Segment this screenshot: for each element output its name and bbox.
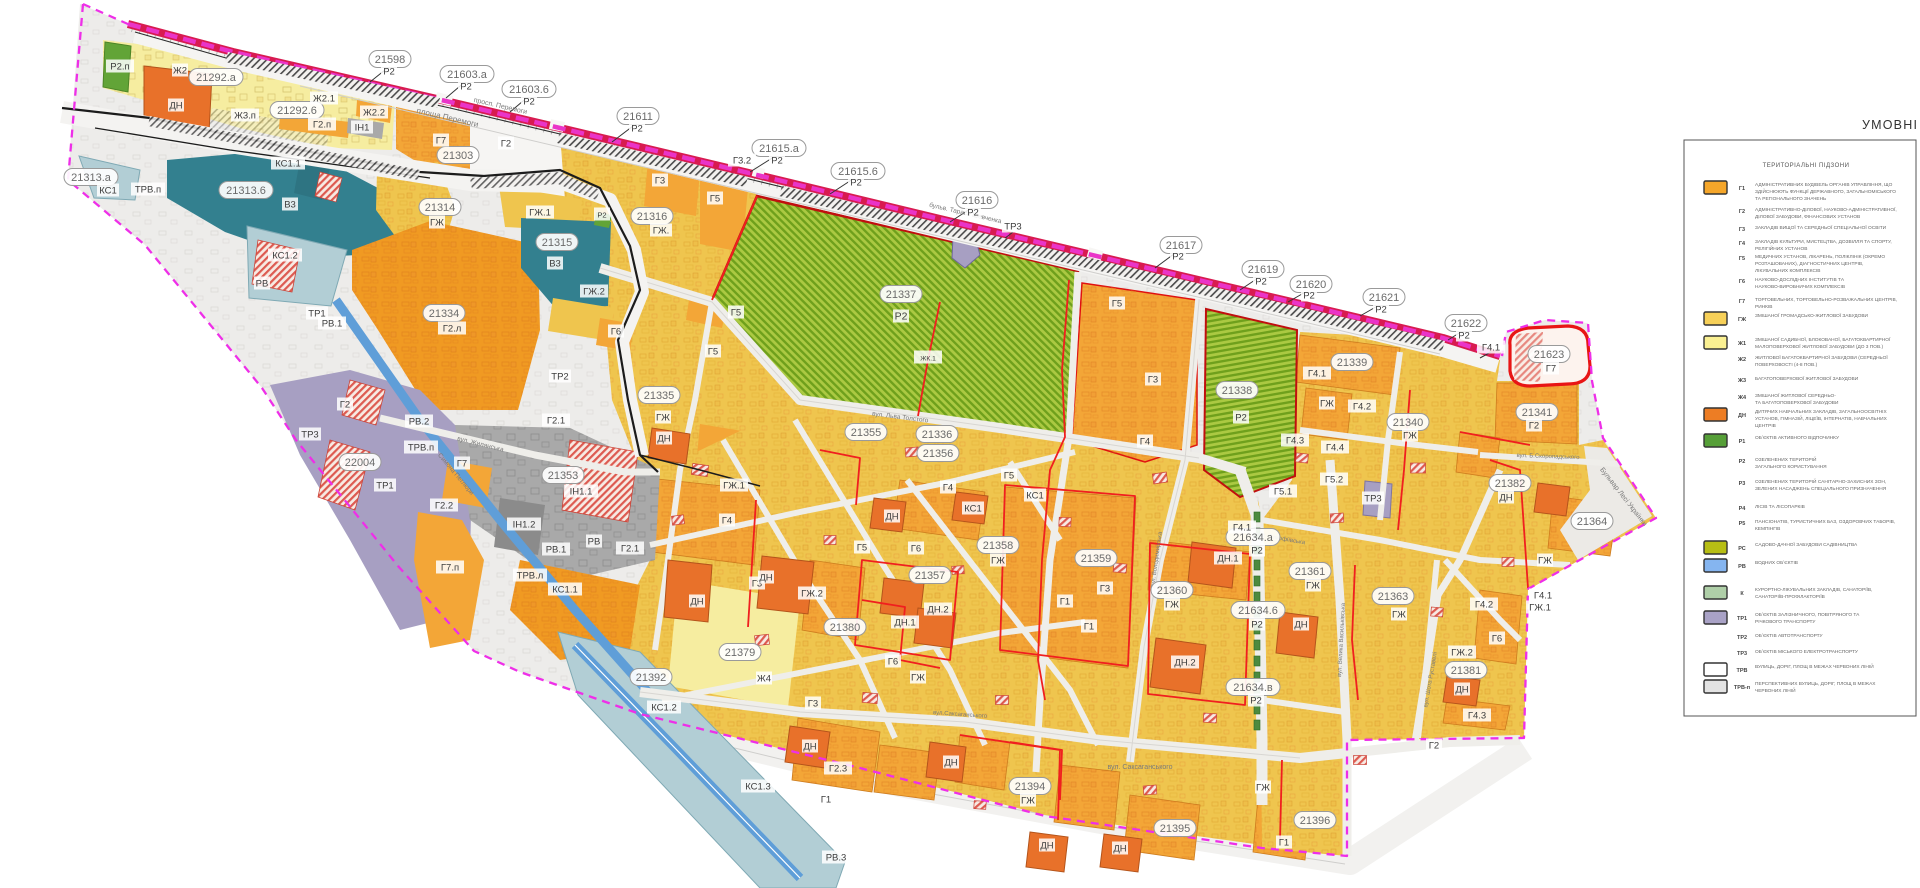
svg-text:ЗАГАЛЬНОГО КОРИСТУВАННЯ: ЗАГАЛЬНОГО КОРИСТУВАННЯ [1755,464,1827,470]
svg-text:21358: 21358 [983,540,1014,552]
svg-text:21340: 21340 [1393,417,1424,429]
svg-text:21315: 21315 [542,237,573,249]
svg-text:Г4.3: Г4.3 [1286,436,1304,447]
svg-text:ЛІСІВ ТА ЛІСОПАРКІВ: ЛІСІВ ТА ЛІСОПАРКІВ [1755,504,1805,510]
svg-text:ТРВ.п: ТРВ.п [135,185,161,196]
svg-text:ТОРГОВЕЛЬНИХ, ТОРГОВЕЛЬНО-РОЗВ: ТОРГОВЕЛЬНИХ, ТОРГОВЕЛЬНО-РОЗВАЖАЛЬНИХ Ц… [1755,297,1897,303]
svg-text:Г2: Г2 [340,400,350,411]
svg-text:21395: 21395 [1160,823,1191,835]
svg-text:РВ: РВ [256,279,269,290]
svg-text:ГЖ: ГЖ [911,673,925,684]
svg-text:КС1.3: КС1.3 [745,782,771,793]
svg-text:КЕМПІНГІВ: КЕМПІНГІВ [1755,526,1780,532]
svg-text:НАУКОВО-ВИРОБНИЧИХ КОМПЛЕКСІВ: НАУКОВО-ВИРОБНИЧИХ КОМПЛЕКСІВ [1755,284,1845,290]
svg-text:21313.6: 21313.6 [226,185,266,197]
svg-text:ДН: ДН [759,573,772,584]
svg-text:Р2: Р2 [460,82,472,93]
svg-text:Г2.л: Г2.л [443,324,462,335]
svg-text:ДН.2: ДН.2 [1174,658,1195,669]
svg-text:УМОВНІ: УМОВНІ [1862,118,1918,132]
svg-text:КС1.1: КС1.1 [275,159,301,170]
svg-text:ДН: ДН [1294,620,1307,631]
svg-text:ТР3: ТР3 [1004,222,1021,233]
svg-text:21622: 21622 [1451,318,1482,330]
svg-text:РОЗТАШОВАНИХ), ДІАГНОСТИЧНИХ Ц: РОЗТАШОВАНИХ), ДІАГНОСТИЧНИХ ЦЕНТРІВ, [1755,261,1863,267]
svg-text:21361: 21361 [1295,566,1326,578]
svg-text:НАУКОВО-ДОСЛІДНИХ ІНСТИТУТІВ Т: НАУКОВО-ДОСЛІДНИХ ІНСТИТУТІВ ТА [1755,277,1845,283]
svg-text:ДН: ДН [1499,493,1512,504]
svg-text:Г6: Г6 [888,657,898,668]
svg-text:Р2: Р2 [967,208,979,219]
svg-text:ДН.1: ДН.1 [894,618,915,629]
svg-text:ГЖ: ГЖ [1256,783,1270,794]
svg-text:Г4.1: Г4.1 [1233,523,1251,534]
svg-text:ДН: ДН [944,758,957,769]
svg-text:ОБʼЄКТІВ АВТОТРАНСПОРТУ: ОБʼЄКТІВ АВТОТРАНСПОРТУ [1755,633,1824,639]
svg-text:21379: 21379 [725,647,756,659]
svg-text:21634.в: 21634.в [1233,682,1273,694]
svg-text:ДН: ДН [1113,844,1126,855]
svg-text:ДН: ДН [657,434,670,445]
svg-text:ГЖ: ГЖ [1306,581,1320,592]
svg-text:Р3: Р3 [1739,481,1746,487]
svg-text:21381: 21381 [1451,665,1482,677]
svg-text:Г7.п: Г7.п [441,563,459,574]
svg-text:21603.a: 21603.a [447,69,488,81]
svg-text:ГЖ: ГЖ [1021,796,1035,807]
svg-text:Г5: Г5 [708,347,718,358]
svg-text:Г5: Г5 [1112,299,1122,310]
svg-text:ЖК.1: ЖК.1 [920,356,936,363]
svg-text:Г2: Г2 [1529,421,1539,432]
svg-text:Р2: Р2 [1251,546,1263,557]
svg-text:21380: 21380 [830,622,861,634]
svg-text:Г4: Г4 [722,516,732,527]
svg-text:Г6: Г6 [1492,634,1502,645]
svg-text:В3: В3 [549,259,561,270]
svg-text:ПОВЕРХОВОСТІ (4-8 ПОВ.): ПОВЕРХОВОСТІ (4-8 ПОВ.) [1755,362,1818,368]
svg-text:Г4: Г4 [943,483,953,494]
svg-text:ДН: ДН [690,597,703,608]
svg-text:САНАТОРІЇВ-ПРОФІЛАКТОРІЇВ: САНАТОРІЇВ-ПРОФІЛАКТОРІЇВ [1755,593,1825,600]
svg-text:ІН1: ІН1 [355,123,370,134]
svg-text:ГЖ.1: ГЖ.1 [1529,603,1551,614]
svg-text:РИНКІВ: РИНКІВ [1755,304,1772,310]
svg-text:ГЖ: ГЖ [430,218,444,229]
svg-text:21392: 21392 [636,672,667,684]
svg-text:21313.a: 21313.a [71,172,112,184]
svg-text:Ж3.п: Ж3.п [234,111,256,122]
svg-text:РВ.2: РВ.2 [409,417,430,428]
svg-text:ВОДНИХ ОБʼЄКТІВ: ВОДНИХ ОБʼЄКТІВ [1755,560,1798,566]
svg-text:МАЛОПОВЕРХОВОЇ ЖИТЛОВОЇ ЗАБУДО: МАЛОПОВЕРХОВОЇ ЖИТЛОВОЇ ЗАБУДОВИ (ДО 3 П… [1755,343,1884,350]
svg-text:Г5: Г5 [1004,471,1014,482]
svg-text:ГЖ: ГЖ [1403,431,1417,442]
svg-text:Г7: Г7 [457,459,467,470]
svg-text:ГЖ: ГЖ [656,413,670,424]
svg-text:Г1: Г1 [1060,597,1070,608]
svg-text:ДН: ДН [1455,685,1468,696]
svg-text:21619: 21619 [1248,264,1279,276]
svg-text:21355: 21355 [851,427,882,439]
svg-text:Р2: Р2 [850,178,862,189]
svg-text:Р2: Р2 [1235,413,1247,424]
svg-text:ОБʼЄКТІВ МІСЬКОГО ЕЛЕКТРОТРАНС: ОБʼЄКТІВ МІСЬКОГО ЕЛЕКТРОТРАНСПОРТУ [1755,649,1859,655]
svg-text:ЦЕНТРІВ: ЦЕНТРІВ [1755,423,1776,429]
svg-text:21338: 21338 [1222,385,1253,397]
svg-text:ТР2: ТР2 [1737,635,1747,641]
svg-text:21316: 21316 [637,211,668,223]
svg-text:Р2: Р2 [523,97,535,108]
svg-text:Г5.1: Г5.1 [1274,487,1292,498]
svg-text:21335: 21335 [644,390,675,402]
svg-text:Р1: Р1 [1739,439,1746,445]
svg-text:Р2: Р2 [1250,696,1262,707]
svg-text:РВ: РВ [588,537,601,548]
svg-text:21357: 21357 [915,570,946,582]
svg-text:Г4: Г4 [1140,437,1150,448]
svg-text:ТА БАГАТОПОВЕРХОВОЇ ЗАБУДОВИ: ТА БАГАТОПОВЕРХОВОЇ ЗАБУДОВИ [1755,399,1839,406]
svg-text:ДН: ДН [885,512,898,523]
svg-text:Р2: Р2 [383,67,395,78]
svg-text:ТР3: ТР3 [1364,494,1381,505]
svg-text:Р2: Р2 [1739,459,1746,465]
svg-text:Г2.1: Г2.1 [547,416,565,427]
svg-text:РВ.1: РВ.1 [322,319,343,330]
svg-text:Г6: Г6 [911,544,921,555]
svg-text:Г3.2: Г3.2 [733,156,751,167]
svg-text:Г4.4: Г4.4 [1326,443,1344,454]
svg-text:21623: 21623 [1534,349,1565,361]
svg-text:Г7: Г7 [1546,364,1556,375]
svg-text:Ж2.2: Ж2.2 [363,108,385,119]
svg-text:БАГАТОПОВЕРХОВОЇ ЖИТЛОВОЇ ЗАБУ: БАГАТОПОВЕРХОВОЇ ЖИТЛОВОЇ ЗАБУДОВИ [1755,375,1859,382]
svg-text:ГЖ.1: ГЖ.1 [529,208,551,219]
svg-text:ГЖ: ГЖ [1738,317,1746,323]
svg-text:21394: 21394 [1015,781,1046,793]
svg-text:ЗЕЛЕНИХ НАСАДЖЕНЬ СПЕЦІАЛЬНОГО: ЗЕЛЕНИХ НАСАДЖЕНЬ СПЕЦІАЛЬНОГО ПРИЗНАЧЕН… [1755,486,1887,492]
svg-text:Г3: Г3 [1100,584,1110,595]
svg-text:КС1.1: КС1.1 [552,585,578,596]
svg-text:21611: 21611 [623,111,653,123]
svg-text:РВ.3: РВ.3 [826,853,847,864]
svg-text:ДН.1: ДН.1 [1217,554,1238,565]
svg-text:ГЖ.2: ГЖ.2 [801,589,823,600]
svg-text:Г5: Г5 [731,308,741,319]
svg-text:Р2: Р2 [597,211,606,220]
svg-text:Г4.1: Г4.1 [1308,369,1326,380]
svg-text:ТРВ.л: ТРВ.л [517,571,544,582]
svg-text:21359: 21359 [1081,553,1112,565]
svg-text:Р2: Р2 [1375,305,1387,316]
svg-text:ГЖ: ГЖ [1392,610,1406,621]
svg-text:ТР1: ТР1 [1737,616,1747,622]
svg-text:ДН: ДН [1040,841,1053,852]
svg-text:Г5: Г5 [857,543,867,554]
svg-text:Г2: Г2 [501,139,511,150]
svg-text:МЕДИЧНИХ УСТАНОВ, ЛІКАРЕНЬ, ПО: МЕДИЧНИХ УСТАНОВ, ЛІКАРЕНЬ, ПОЛІКЛІНІК (… [1755,254,1885,260]
svg-text:ТЕРИТОРІАЛЬНІ ПІДЗОНИ: ТЕРИТОРІАЛЬНІ ПІДЗОНИ [1763,163,1850,169]
svg-text:ГЖ: ГЖ [991,556,1005,567]
svg-text:ЖИТЛОВОЇ БАГАТОКВАРТИРНОЇ ЗАБУ: ЖИТЛОВОЇ БАГАТОКВАРТИРНОЇ ЗАБУДОВИ (СЕРЕ… [1755,354,1888,361]
svg-text:ГЖ: ГЖ [1538,556,1552,567]
svg-text:АДМІНІСТРАТИВНИХ БУДІВЕЛЬ ОРГА: АДМІНІСТРАТИВНИХ БУДІВЕЛЬ ОРГАНІВ УПРАВЛ… [1755,182,1893,188]
svg-text:ТР3: ТР3 [301,430,318,441]
svg-text:ПЕРСПЕКТИВНИХ ВУЛИЦЬ, ДОРІГ, П: ПЕРСПЕКТИВНИХ ВУЛИЦЬ, ДОРІГ, ПЛОЩ В МЕЖА… [1755,681,1876,687]
svg-text:21341: 21341 [1522,407,1553,419]
svg-text:Г1: Г1 [1739,186,1745,192]
svg-text:21616: 21616 [962,195,993,207]
svg-text:ІН1.1: ІН1.1 [570,487,593,498]
svg-text:Г3: Г3 [1148,375,1158,386]
svg-text:Г1: Г1 [1084,622,1094,633]
svg-text:КС1.2: КС1.2 [651,703,677,714]
svg-text:Г4.2: Г4.2 [1353,402,1371,413]
svg-text:Г6: Г6 [1739,279,1745,285]
svg-text:Ж4: Ж4 [1737,395,1747,401]
svg-text:КС1: КС1 [1026,491,1044,502]
svg-text:21336: 21336 [922,429,953,441]
svg-text:КС1: КС1 [964,504,982,515]
svg-text:Г7: Г7 [1739,299,1745,305]
svg-text:ТР2: ТР2 [551,372,568,383]
svg-text:21615.a: 21615.a [759,143,800,155]
svg-text:Р2: Р2 [1458,331,1470,342]
svg-text:21364: 21364 [1577,516,1608,528]
svg-text:Р2: Р2 [1255,277,1267,288]
svg-text:Г4.1: Г4.1 [1482,343,1500,354]
svg-text:ГЖ.2: ГЖ.2 [583,287,605,298]
svg-text:Ж2: Ж2 [173,66,187,77]
svg-text:21598: 21598 [375,54,406,66]
svg-text:В3: В3 [284,200,296,211]
svg-text:Р2.п: Р2.п [110,62,129,73]
svg-text:21634.6: 21634.6 [1238,605,1278,617]
svg-text:Г1: Г1 [1279,838,1289,849]
svg-text:22004: 22004 [345,457,376,469]
svg-text:ГЖ: ГЖ [1165,600,1179,611]
svg-text:Р2: Р2 [1251,620,1263,631]
svg-text:Ж4: Ж4 [757,674,771,685]
svg-text:ЗАКЛАДІВ ВИЩОЇ ТА СЕРЕДНЬОЇ СП: ЗАКЛАДІВ ВИЩОЇ ТА СЕРЕДНЬОЇ СПЕЦІАЛЬНОЇ … [1755,224,1887,231]
svg-text:ТА РЕГІОНАЛЬНОГО ЗНАЧЕНЬ: ТА РЕГІОНАЛЬНОГО ЗНАЧЕНЬ [1755,196,1826,202]
svg-text:Ж2.1: Ж2.1 [313,94,335,105]
svg-text:ДН: ДН [803,742,816,753]
svg-text:Г3: Г3 [808,699,818,710]
svg-text:КС1.2: КС1.2 [272,251,298,262]
svg-text:21314: 21314 [425,202,456,214]
svg-text:21363: 21363 [1378,591,1409,603]
svg-text:ГЖ: ГЖ [1320,399,1334,410]
svg-text:Р2: Р2 [771,156,783,167]
svg-text:КС1: КС1 [99,186,117,197]
svg-text:ТР1: ТР1 [376,481,393,492]
svg-text:ДИТЯЧИХ НАВЧАЛЬНИХ ЗАКЛАДІВ, З: ДИТЯЧИХ НАВЧАЛЬНИХ ЗАКЛАДІВ, ЗАГАЛЬНООСВ… [1755,409,1888,415]
svg-text:ТРВ-п: ТРВ-п [1734,685,1750,691]
svg-text:ЗМІШАНОЇ ЖИТЛОВОЇ СЕРЕДНЬО-: ЗМІШАНОЇ ЖИТЛОВОЇ СЕРЕДНЬО- [1755,392,1836,399]
svg-text:ОБʼЄКТІВ АКТИВНОГО ВІДПОЧИНКУ: ОБʼЄКТІВ АКТИВНОГО ВІДПОЧИНКУ [1755,435,1840,441]
svg-text:Р2: Р2 [1303,291,1315,302]
svg-text:Г6: Г6 [611,327,621,338]
svg-text:РІЧКОВОГО ТРАНСПОРТУ: РІЧКОВОГО ТРАНСПОРТУ [1755,619,1816,625]
svg-text:Г2.п: Г2.п [313,120,331,131]
svg-text:ЛІКУВАЛЬНИХ КОМПЛЕКСІВ: ЛІКУВАЛЬНИХ КОМПЛЕКСІВ [1755,268,1820,274]
svg-text:Г7: Г7 [436,136,446,147]
svg-text:Г2.1: Г2.1 [621,544,639,555]
svg-text:АДМІНІСТРАТИВНО-ДІЛОВОЇ, НАУКО: АДМІНІСТРАТИВНО-ДІЛОВОЇ, НАУКОВО-АДМІНІС… [1755,206,1897,213]
svg-text:ЗМІШАНОЇ ГРОМАДСЬКО-ЖИТЛОВОЇ: ЗМІШАНОЇ ГРОМАДСЬКО-ЖИТЛОВОЇ ЗАБУДОВИ [1755,312,1869,319]
svg-text:РВ.1: РВ.1 [546,545,567,556]
svg-text:Г3: Г3 [1739,227,1745,233]
svg-text:Г5.2: Г5.2 [1325,475,1343,486]
svg-text:САДОВО-ДАЧНОЇ ЗАБУДОВИ САДІВНИ: САДОВО-ДАЧНОЇ ЗАБУДОВИ САДІВНИЦТВА [1755,541,1858,548]
svg-text:КУРОРТНО-ЛІКУВАЛЬНИХ ЗАКЛАДІВ,: КУРОРТНО-ЛІКУВАЛЬНИХ ЗАКЛАДІВ, САНАТОРІЇ… [1755,586,1872,593]
svg-text:Р4: Р4 [1739,506,1747,512]
svg-text:21292.a: 21292.a [196,72,237,84]
svg-text:Г2.3: Г2.3 [829,764,847,775]
svg-text:ЗМІШАНОЇ САДИБНОЇ, БЛОКОВАНОЇ,: ЗМІШАНОЇ САДИБНОЇ, БЛОКОВАНОЇ, БАГАТОКВА… [1755,336,1891,343]
svg-text:вул. Саксаганського: вул. Саксаганського [1107,764,1172,771]
svg-text:21303: 21303 [443,150,474,162]
svg-text:Г2.2: Г2.2 [435,501,453,512]
svg-text:21634.a: 21634.a [1233,532,1274,544]
svg-text:21360: 21360 [1157,585,1188,597]
svg-text:Ж1: Ж1 [1737,341,1746,347]
svg-text:Г2: Г2 [1739,209,1745,215]
svg-text:Г3: Г3 [655,176,665,187]
svg-text:Г2: Г2 [1429,741,1439,752]
svg-text:Г4: Г4 [1739,241,1746,247]
svg-text:21603.6: 21603.6 [509,84,549,96]
svg-text:ДН: ДН [1738,413,1746,419]
svg-text:ТРВ.п: ТРВ.п [408,443,434,454]
svg-text:Г5: Г5 [1739,256,1745,262]
svg-text:21356: 21356 [923,448,954,460]
svg-text:Г5: Г5 [710,194,720,205]
svg-text:Ж2: Ж2 [1737,357,1746,363]
svg-text:Р5: Р5 [1739,521,1746,527]
svg-text:21396: 21396 [1300,815,1331,827]
svg-text:ІН1.2: ІН1.2 [513,520,536,531]
svg-text:Р2: Р2 [631,124,643,135]
svg-text:ДІЛОВОЇ ЗАБУДОВИ, ФІНАНСОВИХ У: ДІЛОВОЇ ЗАБУДОВИ, ФІНАНСОВИХ УСТАНОВ [1755,213,1860,220]
svg-text:ДН.2: ДН.2 [927,605,948,616]
svg-text:Г4.1: Г4.1 [1534,591,1552,602]
svg-text:Ж3: Ж3 [1737,378,1746,384]
svg-text:ЗАКЛАДІВ КУЛЬТУРИ, МИСТЕЦТВА,: ЗАКЛАДІВ КУЛЬТУРИ, МИСТЕЦТВА, ДОЗВІЛЛЯ Т… [1755,239,1892,245]
svg-text:21337: 21337 [886,289,917,301]
svg-text:Г1: Г1 [821,795,831,806]
svg-text:21382: 21382 [1495,478,1526,490]
svg-text:ОБʼЄКТІВ ЗАЛІЗНИЧНОГО, ПОВІТРЯ: ОБʼЄКТІВ ЗАЛІЗНИЧНОГО, ПОВІТРЯНОГО ТА [1755,612,1860,618]
svg-text:ТРВ: ТРВ [1737,668,1748,674]
svg-text:РВ: РВ [1738,564,1746,570]
svg-text:ГЖ.: ГЖ. [653,226,670,237]
svg-text:РС: РС [1738,546,1746,552]
svg-text:ПАНСІОНАТІВ, ТУРИСТИЧНИХ БАЗ,: ПАНСІОНАТІВ, ТУРИСТИЧНИХ БАЗ, ОЗДОРОВЧИХ… [1755,519,1895,525]
svg-text:Р2: Р2 [895,312,908,323]
svg-text:21339: 21339 [1337,357,1368,369]
svg-text:Р2: Р2 [1172,252,1184,263]
svg-text:Г4.3: Г4.3 [1468,711,1486,722]
svg-text:21353: 21353 [548,470,579,482]
svg-text:21292.6: 21292.6 [277,105,317,117]
svg-text:21334: 21334 [429,308,460,320]
svg-text:Г4.2: Г4.2 [1475,600,1493,611]
svg-text:ГЖ.2: ГЖ.2 [1451,648,1473,659]
svg-text:ДН: ДН [169,101,182,112]
svg-text:21621: 21621 [1369,292,1400,304]
svg-text:ГЖ.1: ГЖ.1 [723,481,745,492]
svg-text:ТР3: ТР3 [1737,651,1747,657]
